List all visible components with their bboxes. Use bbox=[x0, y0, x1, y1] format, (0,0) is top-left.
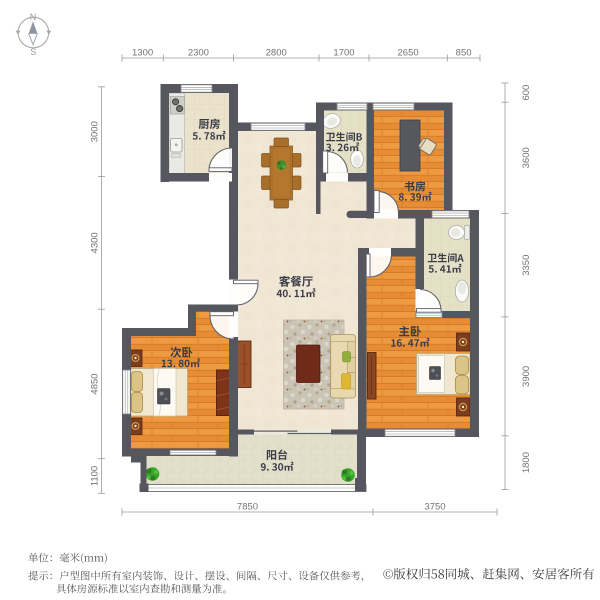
svg-text:1700: 1700 bbox=[333, 48, 354, 59]
svg-text:N: N bbox=[30, 12, 37, 22]
svg-text:7850: 7850 bbox=[237, 502, 258, 513]
svg-text:3750: 3750 bbox=[424, 502, 445, 513]
svg-text:2300: 2300 bbox=[188, 48, 209, 59]
svg-text:3900: 3900 bbox=[521, 366, 532, 387]
svg-text:4300: 4300 bbox=[90, 232, 101, 253]
svg-text:1100: 1100 bbox=[90, 466, 101, 486]
svg-text:3000: 3000 bbox=[90, 121, 101, 142]
svg-text:2650: 2650 bbox=[398, 48, 419, 59]
svg-text:600: 600 bbox=[521, 85, 532, 101]
svg-text:3350: 3350 bbox=[521, 255, 532, 276]
svg-text:1800: 1800 bbox=[521, 452, 532, 473]
svg-text:S: S bbox=[30, 47, 36, 57]
svg-text:850: 850 bbox=[456, 48, 472, 59]
svg-text:2800: 2800 bbox=[266, 48, 287, 59]
svg-text:1300: 1300 bbox=[132, 48, 153, 59]
svg-text:3600: 3600 bbox=[521, 147, 532, 168]
svg-text:4850: 4850 bbox=[90, 373, 101, 394]
